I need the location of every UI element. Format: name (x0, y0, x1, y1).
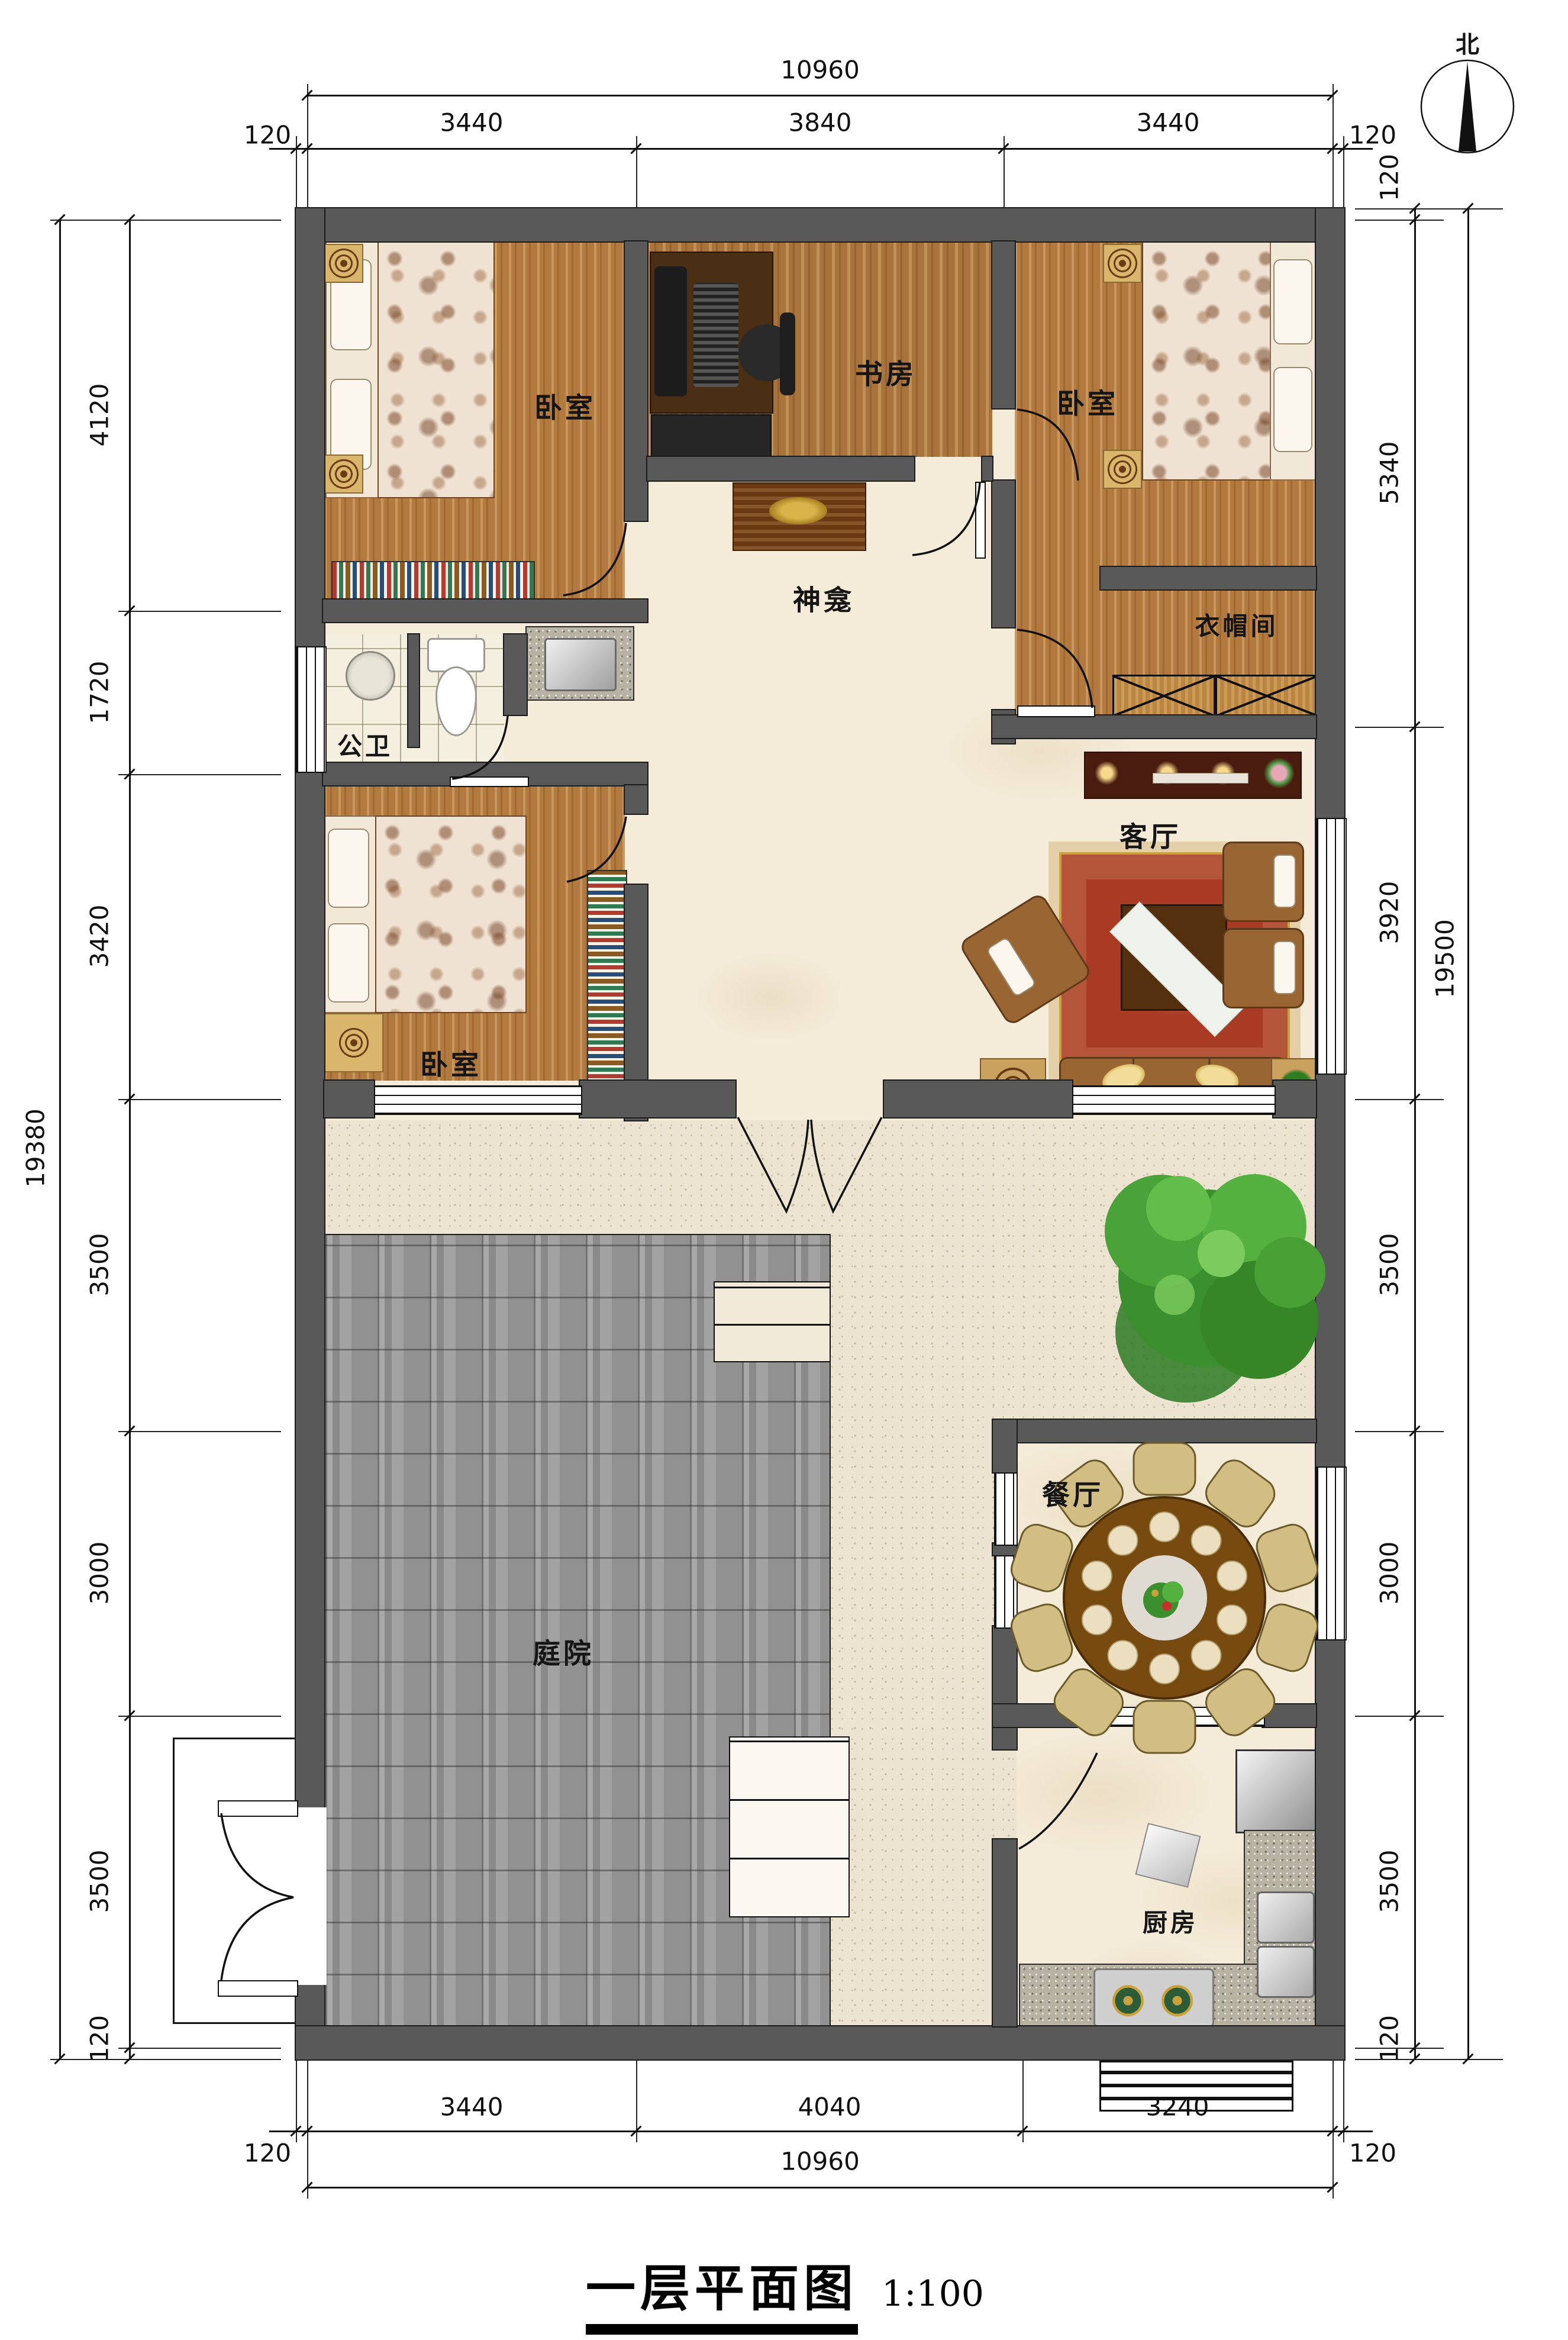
dimension-line (1414, 208, 1416, 2059)
dim-right-seg: 3000 (1375, 1542, 1404, 1605)
extension-line (118, 611, 281, 612)
extension-line (118, 2048, 281, 2049)
room-label-cloakroom: 衣帽间 (1195, 607, 1278, 643)
door-arc (912, 483, 980, 555)
room-label-courtyard: 庭院 (533, 1631, 594, 1672)
compass-north-label: 北 (1456, 25, 1479, 60)
hall-double-door (738, 1117, 808, 1211)
dim-top-overall: 10960 (780, 56, 860, 85)
dim-bottom-seg: 120 (1349, 2139, 1396, 2168)
dimension-line (307, 95, 1333, 96)
dim-top-seg: 120 (244, 121, 291, 150)
dim-top-seg: 120 (1349, 121, 1396, 150)
dim-right-seg: 3920 (1375, 881, 1404, 945)
room-label-kitchen: 厨房 (1143, 1903, 1198, 1939)
dim-right-seg: 3500 (1375, 1850, 1404, 1913)
door-arc (567, 817, 626, 882)
extension-line (118, 1431, 281, 1432)
dim-bottom-seg: 120 (244, 2139, 291, 2168)
extension-line (1355, 1099, 1444, 1100)
dim-left-seg: 120 (85, 2015, 114, 2062)
north-compass (1421, 60, 1514, 153)
dim-left-seg: 3000 (85, 1542, 114, 1605)
room-label-bedroom-tr: 卧室 (1057, 381, 1118, 422)
dim-right-seg: 5340 (1375, 441, 1404, 505)
plan-linework (0, 0, 1568, 2340)
dim-bottom-seg: 3440 (440, 2093, 504, 2122)
dimension-line (1467, 208, 1469, 2059)
extension-line (1355, 1431, 1444, 1432)
dim-left-seg: 3420 (85, 905, 114, 968)
door-arc (1017, 630, 1092, 708)
drawing-title: 一层平面图 (586, 2249, 858, 2335)
entry-door-arc (221, 1897, 293, 1980)
dim-right-overall: 19500 (1431, 919, 1460, 998)
dim-left-seg: 1720 (85, 661, 114, 724)
dimension-line (129, 220, 131, 2059)
room-label-bedroom-tl: 卧室 (534, 385, 596, 426)
dim-right-seg: 120 (1375, 2015, 1404, 2062)
extension-line (118, 774, 281, 775)
dim-bottom-seg: 3240 (1146, 2093, 1209, 2122)
dim-left-seg: 3500 (85, 1233, 114, 1297)
bamboo-tree (1105, 1174, 1325, 1403)
extension-line (1355, 727, 1444, 728)
hall-double-door (811, 1117, 882, 1211)
dimension-line (307, 2187, 1333, 2188)
dimension-line (269, 2131, 1373, 2132)
dim-right-seg: 3500 (1375, 1233, 1404, 1297)
room-label-living: 客厅 (1119, 814, 1181, 855)
door-arc (563, 523, 626, 595)
extension-line (118, 1099, 281, 1100)
room-label-dining: 餐厅 (1042, 1472, 1104, 1513)
kitchen-door-arc (1019, 1753, 1097, 1849)
dimension-line (59, 220, 61, 2059)
room-label-shrine: 神龛 (793, 578, 854, 618)
dim-top-seg: 3440 (1137, 108, 1200, 137)
dim-left-overall: 19380 (21, 1108, 50, 1188)
dim-top-seg: 3440 (440, 108, 504, 137)
dim-top-seg: 3840 (789, 108, 852, 137)
extension-line (1355, 1716, 1444, 1717)
dim-bottom-overall: 10960 (780, 2147, 860, 2176)
room-label-bedroom-bl: 卧室 (420, 1042, 482, 1083)
floor-plan-sheet: 10960 120 3440 3840 3440 120 120 3440 40… (0, 0, 1568, 2340)
dim-right-seg: 120 (1375, 154, 1404, 201)
dim-left-seg: 4120 (85, 383, 114, 447)
extension-line (118, 1716, 281, 1717)
entry-door-arc (221, 1813, 293, 1897)
dim-bottom-seg: 4040 (798, 2093, 862, 2122)
room-label-study: 书房 (855, 352, 917, 392)
extension-line (1355, 220, 1444, 221)
room-label-bathroom: 公卫 (337, 727, 393, 763)
drawing-scale: 1:100 (882, 2273, 984, 2315)
extension-line (1355, 208, 1503, 209)
dim-left-seg: 3500 (85, 1850, 114, 1913)
drawing-title-block: 一层平面图 1:100 (586, 2249, 984, 2335)
door-arc (452, 716, 508, 779)
dimension-line (269, 148, 1373, 150)
extension-line (50, 220, 281, 221)
